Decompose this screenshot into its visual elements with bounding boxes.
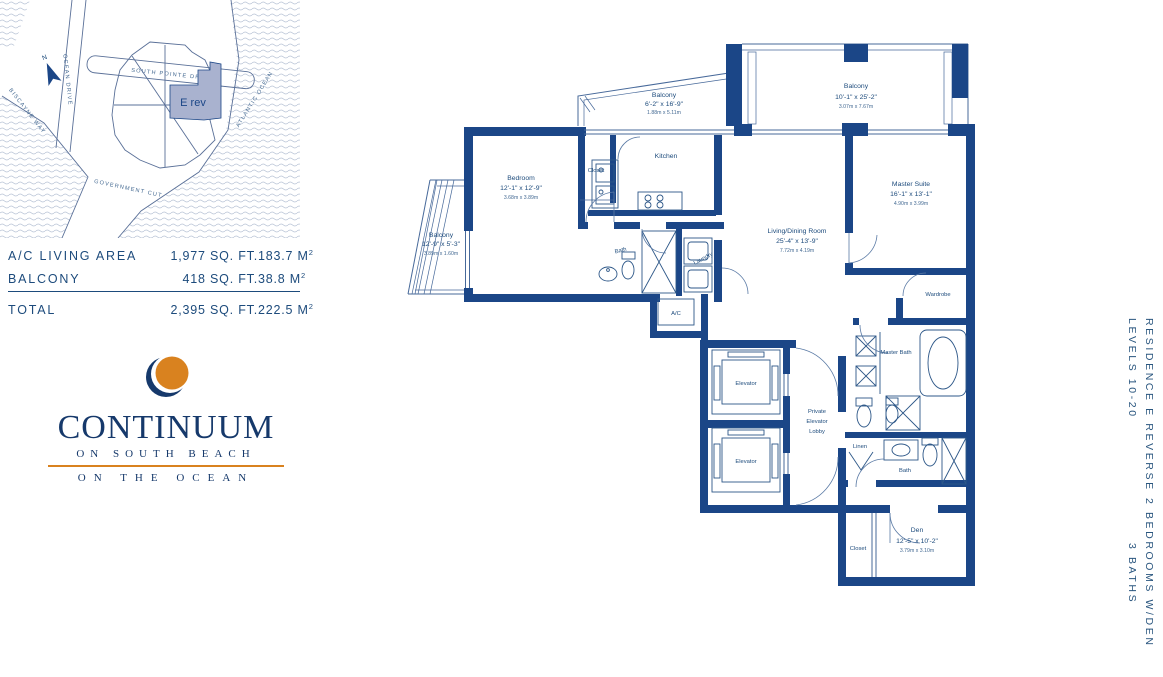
kitchen-fixtures <box>592 160 682 210</box>
area-row-total: TOTAL 2,395 SQ. FT. 222.5 M2 <box>8 297 300 320</box>
area-table: A/C LIVING AREA 1,977 SQ. FT. 183.7 M2 B… <box>8 243 300 320</box>
svg-text:12'-9" x 5'-3": 12'-9" x 5'-3" <box>422 241 461 248</box>
svg-text:Lobby: Lobby <box>809 429 825 435</box>
unit-highlight-label: E rev <box>180 97 206 109</box>
area-sqft: 418 SQ. FT. <box>158 270 258 289</box>
svg-text:3.89m x 1.60m: 3.89m x 1.60m <box>424 251 458 257</box>
area-label: TOTAL <box>8 301 158 320</box>
svg-text:16'-1" x 13'-1": 16'-1" x 13'-1" <box>890 191 932 198</box>
area-sqft: 1,977 SQ. FT. <box>158 247 258 266</box>
area-sqm: 222.5 M2 <box>258 297 314 320</box>
svg-text:Elevator: Elevator <box>806 419 827 425</box>
logo-rule <box>48 465 284 467</box>
building-footprint: E rev <box>112 42 221 168</box>
svg-text:3.07m x 7.67m: 3.07m x 7.67m <box>839 104 873 110</box>
bath2-fixtures <box>884 438 966 484</box>
bedroom-label: Bedroom <box>507 175 535 182</box>
cut-water <box>0 95 88 238</box>
street-south-pointe: SOUTH POINTE DRIVE <box>86 55 255 89</box>
den-label: Den <box>911 527 924 534</box>
linen-bifold-door <box>849 452 873 470</box>
caption-bedrooms: 2 BEDROOMS W/DEN <box>1143 498 1155 648</box>
caption-levels: LEVELS 10-20 <box>1126 318 1138 419</box>
master-bath-label: Master Bath <box>880 350 911 356</box>
north-arrow: N <box>37 52 62 86</box>
area-label: BALCONY <box>8 270 158 289</box>
svg-text:4.90m x 3.99m: 4.90m x 3.99m <box>894 201 928 207</box>
street-ocean-drive: OCEAN DRIVE <box>56 0 86 152</box>
logo-tagline-2: ON THE OCEAN <box>46 472 286 484</box>
government-cut-label: GOVERNMENT CUT <box>93 179 163 199</box>
bath-label: Bath <box>614 247 627 256</box>
moon-sun-logo-icon <box>142 352 190 400</box>
master-suite-label: Master Suite <box>892 181 930 188</box>
area-row-balcony: BALCONY 418 SQ. FT. 38.8 M2 <box>8 266 300 292</box>
closet-bedroom-label: Closet <box>588 168 605 174</box>
ac-label: A/C <box>671 311 681 317</box>
logo-tagline-1: ON SOUTH BEACH <box>46 448 286 460</box>
kitchen-label: Kitchen <box>655 153 678 160</box>
svg-text:7.72m x 4.19m: 7.72m x 4.19m <box>780 248 814 254</box>
area-sqm: 183.7 M2 <box>258 243 314 266</box>
continuum-logo: CONTINUUM ON SOUTH BEACH ON THE OCEAN <box>46 352 286 484</box>
corner-water <box>0 0 30 50</box>
bath2-label: Bath <box>899 468 911 474</box>
lobby-label: Private <box>808 409 826 415</box>
elevator-2-label: Elevator <box>735 459 756 465</box>
balcony-left-label: Balcony <box>429 232 454 239</box>
svg-text:25'-4" x 13'-9": 25'-4" x 13'-9" <box>776 238 818 245</box>
svg-text:10'-1" x 25'-2": 10'-1" x 25'-2" <box>835 94 877 101</box>
bath-fixtures <box>599 231 676 293</box>
caption-residence: RESIDENCE E REVERSE <box>1143 318 1155 492</box>
svg-text:6'-2" x 16'-9": 6'-2" x 16'-9" <box>645 101 684 108</box>
svg-text:3.79m x 3.10m: 3.79m x 3.10m <box>900 548 934 554</box>
svg-text:1.88m x 5.11m: 1.88m x 5.11m <box>647 110 681 116</box>
floor-plan: Balcony 6'-2" x 16'-9" 1.88m x 5.11m Bal… <box>395 25 990 610</box>
walls <box>464 44 975 586</box>
area-row-living: A/C LIVING AREA 1,977 SQ. FT. 183.7 M2 <box>8 243 300 266</box>
closet-den-label: Closet <box>850 546 867 552</box>
svg-text:12'-1" x 12'-9": 12'-1" x 12'-9" <box>500 185 542 192</box>
area-sqft: 2,395 SQ. FT. <box>158 301 258 320</box>
room-labels: Balcony 6'-2" x 16'-9" 1.88m x 5.11m Bal… <box>422 83 951 554</box>
wardrobe-label: Wardrobe <box>925 292 950 298</box>
svg-text:N: N <box>41 54 48 62</box>
floor-plan-sheet: { "colors": {"navy": "#1b4687", "text_na… <box>0 0 1163 677</box>
area-sqm: 38.8 M2 <box>258 266 306 289</box>
balcony-top-right-label: Balcony <box>844 83 869 90</box>
elevator-1-label: Elevator <box>735 381 756 387</box>
living-dining-label: Living/Dining Room <box>768 228 827 235</box>
unit-highlight <box>170 62 221 120</box>
svg-text:3.68m x 3.89m: 3.68m x 3.89m <box>504 195 538 201</box>
svg-text:12'-5" x 10'-2": 12'-5" x 10'-2" <box>896 538 938 545</box>
master-bath-fixtures <box>856 330 966 430</box>
linen-label: Linen <box>853 444 867 450</box>
area-label: A/C LIVING AREA <box>8 247 158 266</box>
caption-baths: 3 BATHS <box>1126 543 1138 604</box>
logo-name: CONTINUUM <box>46 411 286 445</box>
balcony-top-left-label: Balcony <box>652 92 677 99</box>
site-map: SOUTH POINTE DRIVE OCEAN DRIVE BISCAYNE … <box>0 0 300 238</box>
